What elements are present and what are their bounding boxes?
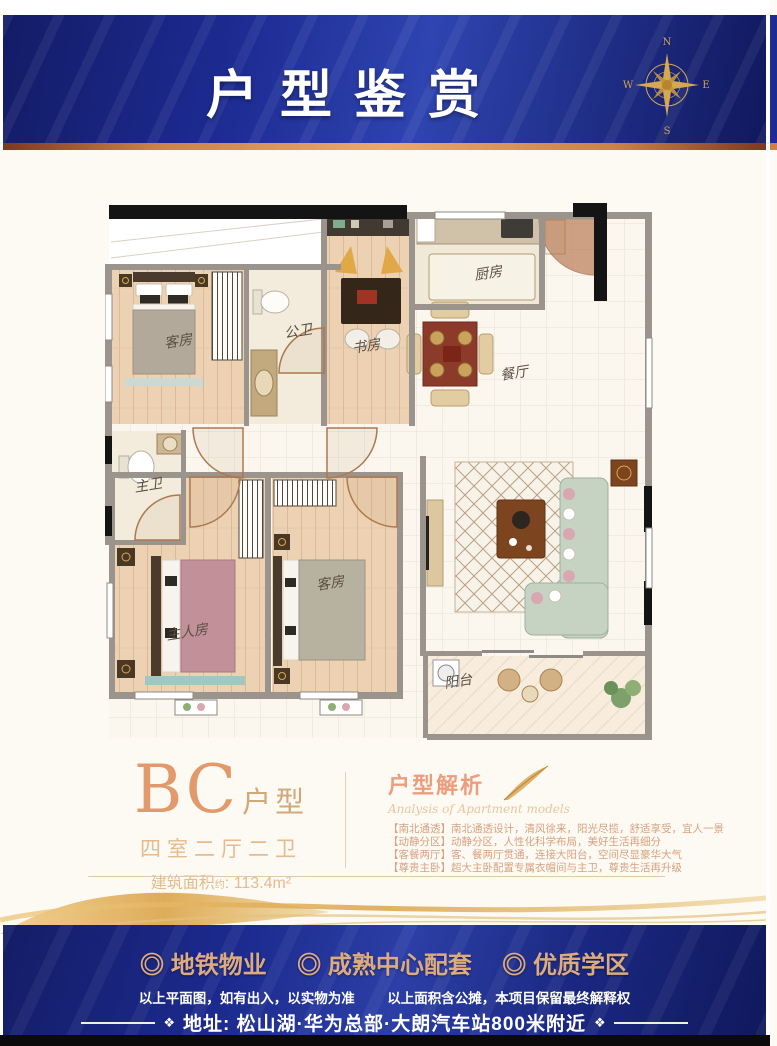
copper-divider [3,143,766,150]
bottom-black-bar [0,1035,777,1046]
poster-page: 户型鉴赏 N S W [0,0,766,1046]
compass-n-label: N [663,37,672,48]
highlight-metro: ◎ 地铁物业 [140,952,267,979]
page-title: 户型鉴赏 [3,53,683,128]
footer-highlights: ◎ 地铁物业 ◎ 成熟中心配套 ◎ 优质学区 [3,945,766,980]
unit-title: BC 户型 [110,760,332,821]
address-line-right [614,1022,688,1024]
highlight-center: ◎ 成熟中心配套 [297,952,472,979]
adjacent-page-sliver [770,0,777,1046]
adjacent-page-header [770,15,777,143]
unit-layout: 四室二厅二卫 [110,833,332,863]
address-text: 地址: 松山湖·华为总部·大朗汽车站800米附近 [183,1009,586,1035]
address-ornament-right: ❖ [594,1015,606,1031]
floor-plan: 客房 公卫 书房 厨房 餐厅 主卫 主人房 客房 阳台 [105,198,661,746]
unit-suffix: 户型 [242,779,308,821]
header-banner: 户型鉴赏 N S W [3,15,766,143]
vertical-divider [345,772,346,868]
highlight-school: ◎ 优质学区 [502,952,629,979]
address-ornament-left: ❖ [163,1015,175,1031]
disclaimer-right: 以上面积含公摊，本项目保留最终解释权 [387,991,630,1006]
analysis-items: 【南北通透】南北通透设计，清风徐来，阳光尽揽，舒适享受，宜人一景 【动静分区】动… [388,823,666,875]
analysis-item: 【客餐两厅】客、餐两厅贯通，连接大阳台，空间尽显豪华大气 [388,849,666,862]
disclaimer-left: 以上平面图，如有出入，以实物为准 [139,991,355,1006]
compass-icon: N S W E [621,33,713,142]
footer-disclaimer: 以上平面图，如有出入，以实物为准 以上面积含公摊，本项目保留最终解释权 [3,987,766,1008]
kitchen-fixtures [417,214,541,300]
address-line-left [81,1022,155,1024]
analysis-item: 【动静分区】动静分区，人性化科学布局，美好生活再细分 [388,836,666,849]
feather-icon [500,764,552,807]
adjacent-page-copper [770,143,777,150]
analysis-section: 户型解析 Analysis of Apartment models 【南北通透】… [388,768,666,875]
compass-e-label: E [702,80,709,91]
analysis-item: 【南北通透】南北通透设计，清风徐来，阳光尽揽，舒适享受，宜人一景 [388,823,666,836]
unit-code: BC [134,760,238,820]
compass-w-label: W [623,80,634,91]
footer-address-row: ❖ 地址: 松山湖·华为总部·大朗汽车站800米附近 ❖ [3,1009,766,1035]
footer-banner: ◎ 地铁物业 ◎ 成熟中心配套 ◎ 优质学区 以上平面图，如有出入，以实物为准 … [3,925,766,1035]
compass-s-label: S [664,126,671,137]
